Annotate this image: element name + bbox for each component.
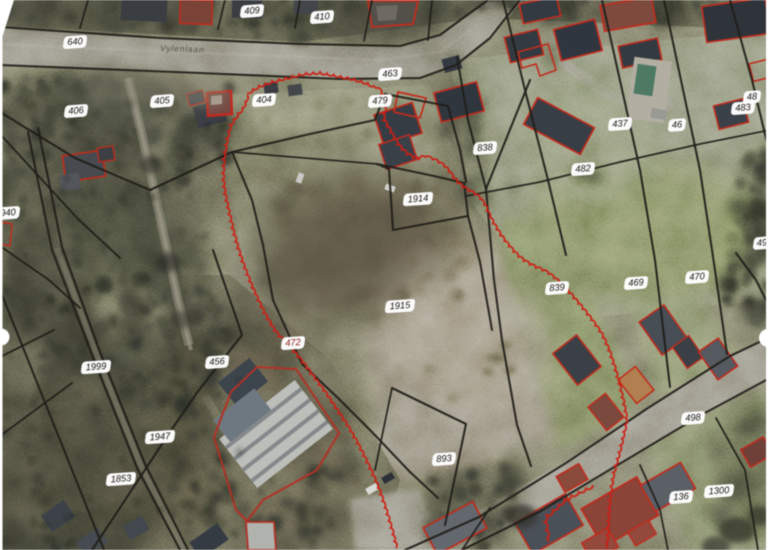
svg-text:940: 940 xyxy=(0,207,17,218)
svg-text:404: 404 xyxy=(256,94,272,105)
svg-text:1914: 1914 xyxy=(407,193,428,204)
svg-text:463: 463 xyxy=(382,68,399,79)
svg-text:1915: 1915 xyxy=(389,300,411,311)
svg-text:893: 893 xyxy=(436,453,453,464)
svg-text:437: 437 xyxy=(612,118,629,129)
svg-text:498: 498 xyxy=(685,412,702,423)
svg-text:405: 405 xyxy=(154,95,171,106)
svg-text:46: 46 xyxy=(671,119,683,130)
svg-text:409: 409 xyxy=(244,5,260,16)
svg-text:469: 469 xyxy=(628,277,644,288)
svg-text:838: 838 xyxy=(477,142,494,153)
svg-text:472: 472 xyxy=(285,337,302,348)
svg-text:1853: 1853 xyxy=(110,473,132,484)
svg-text:1947: 1947 xyxy=(149,431,171,442)
svg-text:Vylenlaan: Vylenlaan xyxy=(160,43,205,55)
svg-text:479: 479 xyxy=(372,95,388,106)
svg-text:49: 49 xyxy=(756,237,767,248)
svg-text:483: 483 xyxy=(735,102,752,113)
svg-text:1300: 1300 xyxy=(708,485,730,496)
svg-text:136: 136 xyxy=(673,491,690,502)
svg-text:1999: 1999 xyxy=(85,361,106,372)
svg-text:48: 48 xyxy=(746,91,758,102)
svg-text:470: 470 xyxy=(689,271,706,282)
svg-text:456: 456 xyxy=(209,356,226,367)
svg-text:839: 839 xyxy=(549,282,565,293)
svg-text:482: 482 xyxy=(575,163,592,174)
svg-text:410: 410 xyxy=(314,11,331,22)
svg-text:640: 640 xyxy=(67,36,84,47)
svg-text:406: 406 xyxy=(68,105,85,116)
